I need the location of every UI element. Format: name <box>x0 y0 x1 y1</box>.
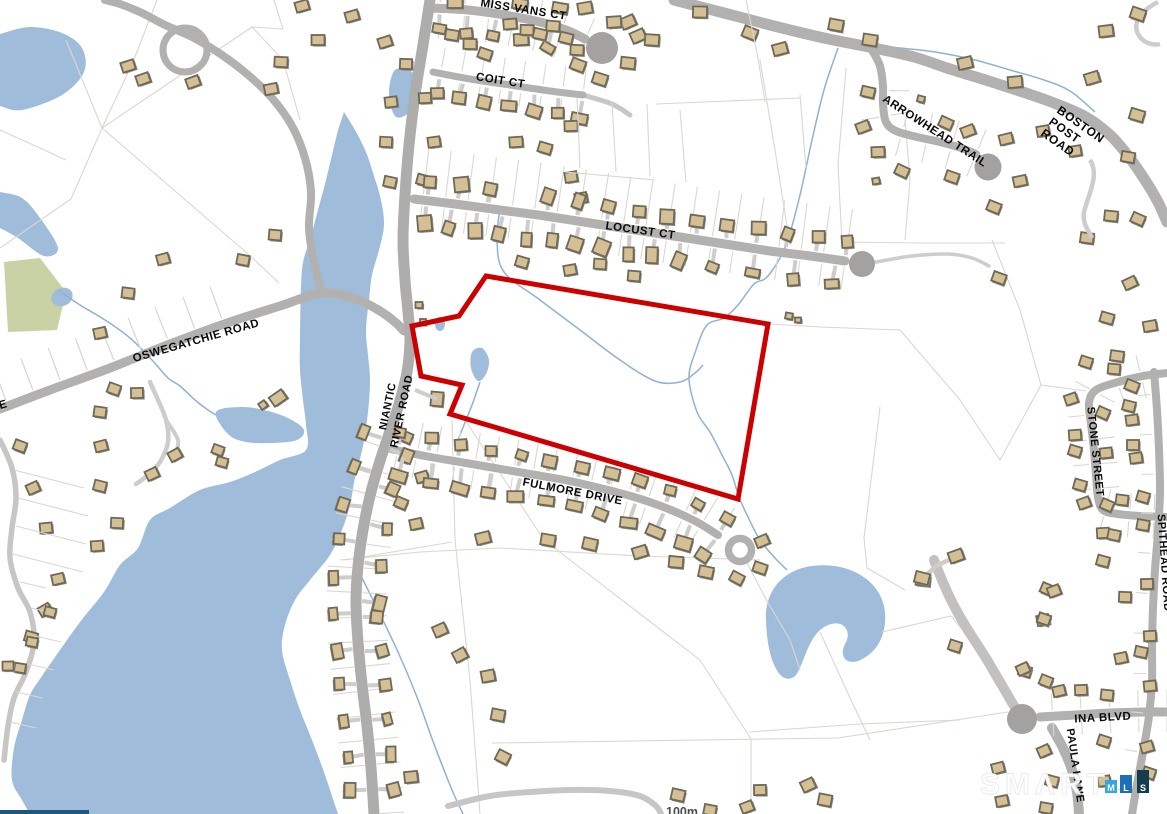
svg-text:M: M <box>1107 783 1115 793</box>
svg-text:100m: 100m <box>666 805 698 814</box>
svg-text:L: L <box>1123 783 1129 793</box>
svg-text:S: S <box>1140 783 1146 793</box>
svg-text:SMΛRT: SMΛRT <box>980 768 1110 801</box>
